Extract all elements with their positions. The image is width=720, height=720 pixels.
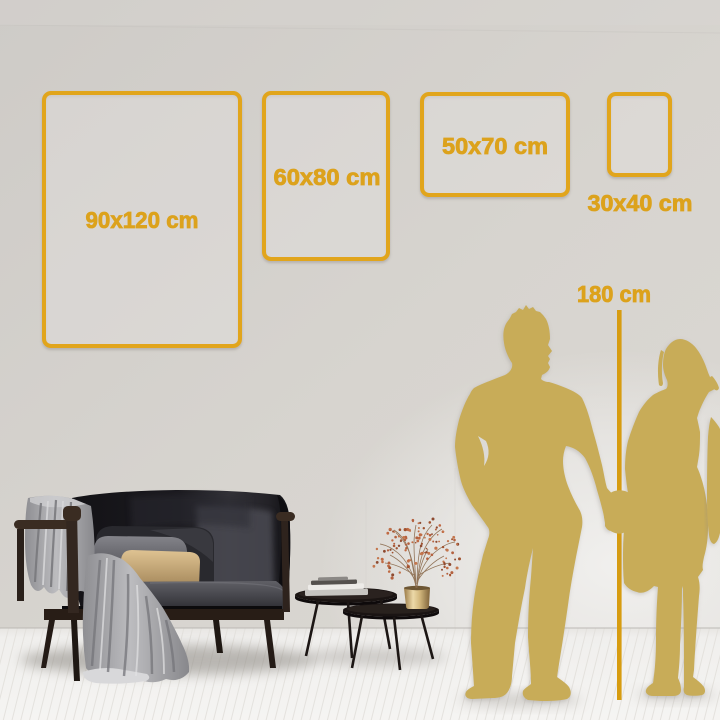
svg-text:90x120 cm: 90x120 cm [86, 207, 199, 233]
svg-text:60x80 cm: 60x80 cm [274, 164, 381, 190]
svg-text:180 cm: 180 cm [577, 281, 651, 307]
svg-text:30x40 cm: 30x40 cm [588, 190, 693, 216]
svg-text:50x70 cm: 50x70 cm [442, 133, 548, 159]
